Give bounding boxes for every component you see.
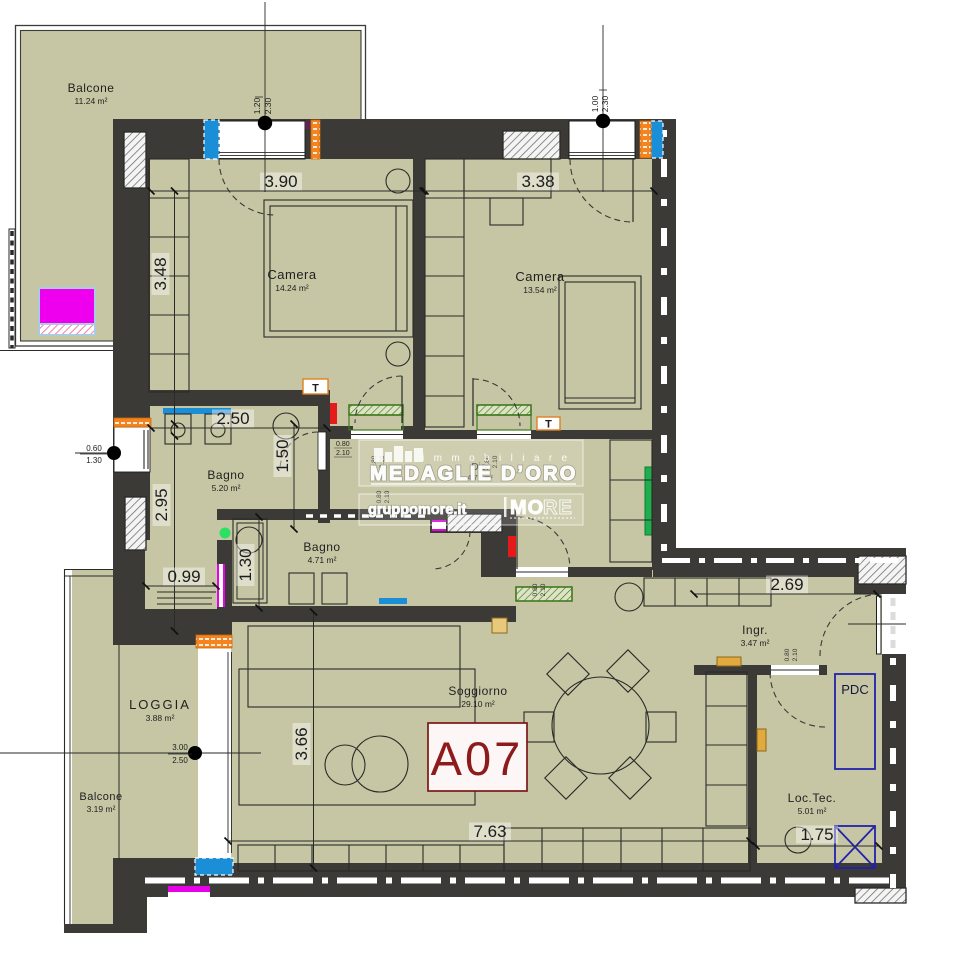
svg-text:Bagno: Bagno [207, 468, 244, 482]
svg-text:2.10: 2.10 [792, 648, 799, 661]
svg-text:3.48: 3.48 [151, 257, 170, 290]
svg-text:T: T [312, 383, 319, 395]
svg-text:0.80: 0.80 [532, 583, 539, 596]
svg-text:0.80: 0.80 [336, 441, 350, 448]
svg-text:2.10: 2.10 [540, 583, 547, 596]
svg-text:Soggiorno: Soggiorno [448, 684, 507, 698]
svg-text:MEDAGLIE D’ORO: MEDAGLIE D’ORO [370, 463, 577, 485]
svg-text:1.50: 1.50 [273, 439, 292, 472]
svg-text:3.47 m²: 3.47 m² [741, 638, 770, 648]
svg-text:1.20: 1.20 [252, 97, 262, 114]
svg-text:11.24 m²: 11.24 m² [75, 96, 108, 106]
svg-text:RE: RE [543, 497, 573, 519]
svg-text:0.60: 0.60 [86, 444, 102, 453]
svg-text:3.66: 3.66 [292, 727, 311, 760]
svg-text:LOGGIA: LOGGIA [129, 697, 191, 712]
svg-text:0.99: 0.99 [167, 567, 200, 586]
svg-text:1.00: 1.00 [590, 95, 600, 112]
svg-text:2.69: 2.69 [770, 575, 803, 594]
svg-text:Balcone: Balcone [79, 791, 122, 803]
svg-text:2.95: 2.95 [152, 488, 171, 521]
svg-text:29.10 m²: 29.10 m² [461, 699, 495, 709]
svg-text:1.75: 1.75 [800, 825, 833, 844]
svg-text:PDC: PDC [841, 682, 868, 697]
svg-text:2.30: 2.30 [600, 95, 610, 112]
svg-text:5.20 m²: 5.20 m² [212, 483, 241, 493]
svg-text:2.50: 2.50 [216, 409, 249, 428]
svg-text:MO: MO [510, 497, 544, 519]
svg-text:7.63: 7.63 [473, 822, 506, 841]
svg-text:gruppomore.it: gruppomore.it [368, 502, 466, 518]
svg-text:4.71 m²: 4.71 m² [308, 555, 337, 565]
svg-text:Loc.Tec.: Loc.Tec. [788, 791, 837, 805]
svg-text:Camera: Camera [515, 269, 565, 284]
svg-text:3.19 m²: 3.19 m² [87, 804, 116, 814]
svg-text:3.00: 3.00 [172, 743, 188, 752]
svg-text:2.30: 2.30 [263, 97, 273, 114]
svg-text:3.90: 3.90 [264, 172, 297, 191]
svg-text:2.50: 2.50 [172, 756, 188, 765]
svg-text:0.80: 0.80 [784, 648, 791, 661]
svg-text:1.30: 1.30 [86, 456, 102, 465]
svg-text:13.54 m²: 13.54 m² [523, 285, 557, 295]
svg-text:3.88 m²: 3.88 m² [146, 713, 175, 723]
svg-text:1.30: 1.30 [236, 548, 255, 581]
svg-text:Balcone: Balcone [68, 81, 115, 95]
svg-text:5.01 m²: 5.01 m² [798, 806, 827, 816]
svg-text:T: T [545, 419, 552, 431]
svg-text:2.10: 2.10 [336, 450, 350, 457]
svg-text:Ingr.: Ingr. [742, 623, 768, 637]
svg-text:14.24 m²: 14.24 m² [275, 283, 309, 293]
svg-text:Camera: Camera [267, 267, 317, 282]
svg-text:3.38: 3.38 [521, 172, 554, 191]
svg-text:Bagno: Bagno [303, 540, 340, 554]
svg-text:A07: A07 [431, 732, 524, 785]
